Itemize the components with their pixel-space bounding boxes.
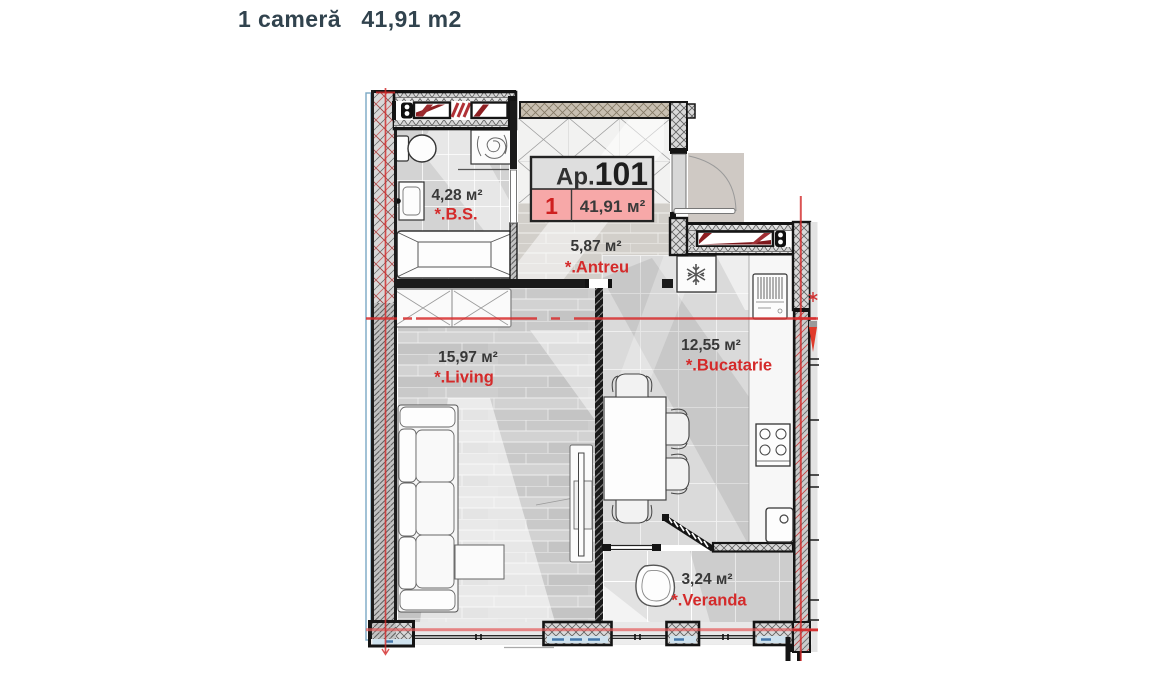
svg-text:4,28 м²: 4,28 м² — [431, 187, 482, 204]
svg-text:41,91 м²: 41,91 м² — [580, 197, 646, 216]
svg-text:*.Living: *.Living — [434, 369, 494, 387]
svg-text:*.Antreu: *.Antreu — [565, 259, 629, 277]
svg-text:5,87 м²: 5,87 м² — [570, 238, 621, 255]
svg-text:*.Bucatarie: *.Bucatarie — [686, 357, 772, 375]
svg-text:1: 1 — [545, 193, 558, 219]
svg-text:12,55 м²: 12,55 м² — [681, 337, 741, 354]
svg-text:*.B.S.: *.B.S. — [434, 206, 477, 224]
svg-text:*.Veranda: *.Veranda — [671, 592, 747, 610]
svg-text:15,97 м²: 15,97 м² — [438, 349, 498, 366]
svg-text:3,24 м²: 3,24 м² — [681, 571, 732, 588]
